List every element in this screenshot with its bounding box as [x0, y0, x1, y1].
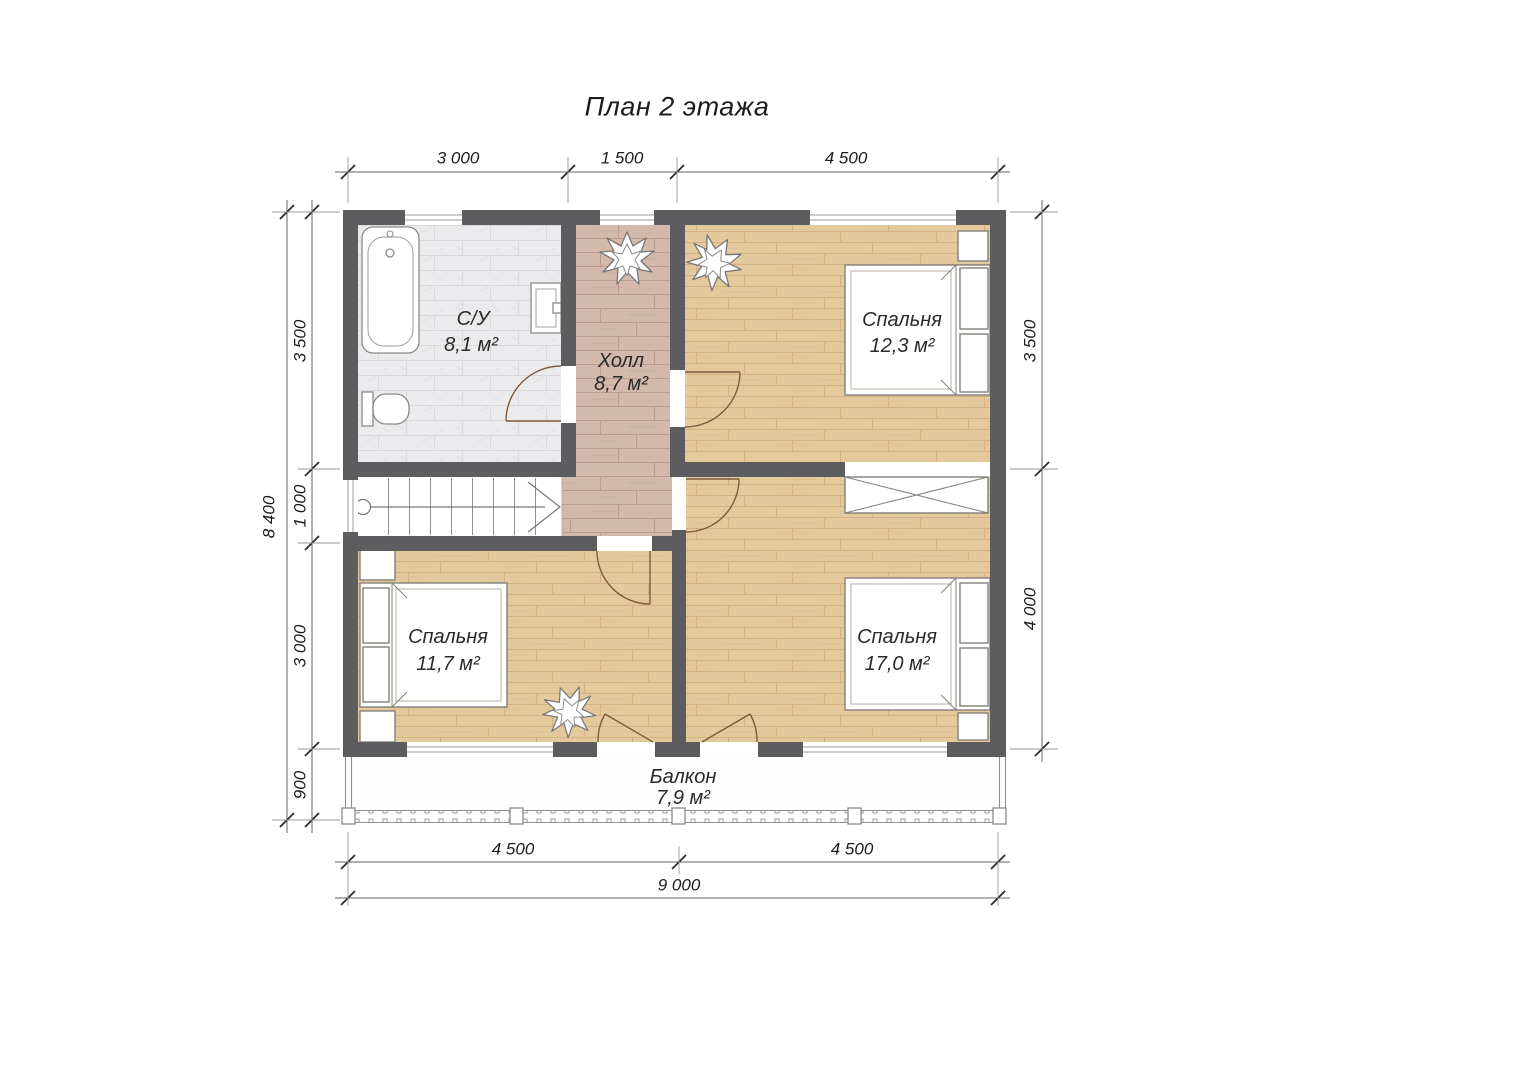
toilet-tank — [362, 392, 373, 426]
window — [343, 480, 358, 532]
room-label-bathroom-area: 8,1 м² — [444, 335, 498, 355]
floor-plan-drawing — [0, 0, 1532, 1080]
dim-bottom-overall: 9 000 — [658, 877, 701, 894]
bathtub — [362, 227, 419, 353]
bathtub-drain — [386, 249, 394, 257]
dim-left-4: 900 — [292, 771, 309, 799]
dim-right-2: 4 000 — [1022, 588, 1039, 631]
dim-left-overall: 8 400 — [261, 496, 278, 539]
dim-bottom-1: 4 500 — [492, 841, 535, 858]
railing-post — [672, 808, 685, 824]
railing-post — [510, 808, 523, 824]
pillow — [960, 334, 988, 392]
pillow — [363, 647, 389, 702]
pillow — [960, 268, 988, 329]
dim-left-1: 3 500 — [292, 320, 309, 363]
toilet-bowl — [373, 394, 409, 424]
wall-bathroom-right — [561, 210, 576, 477]
window — [600, 210, 654, 225]
wall-bathroom-bottom — [343, 462, 576, 477]
room-label-bedroom-bottom-right-area: 17,0 м² — [865, 654, 930, 674]
room-label-hall-name: Холл — [598, 351, 644, 371]
hall-landing-floor — [562, 477, 676, 536]
dim-left-2: 1 000 — [292, 485, 309, 528]
page-title: План 2 этажа — [585, 94, 770, 121]
pillow — [960, 583, 988, 643]
wall-exterior-right — [990, 210, 1006, 757]
nightstand — [958, 713, 988, 740]
nightstand — [958, 231, 988, 261]
railing-post — [848, 808, 861, 824]
floor-plan-page: План 2 этажа 3 000 1 500 4 500 8 400 3 5… — [0, 0, 1532, 1080]
railing-post — [342, 808, 355, 824]
railing-post — [993, 808, 1006, 824]
window — [803, 742, 947, 757]
sink-faucet — [553, 303, 561, 313]
nightstand — [360, 711, 395, 742]
window — [405, 210, 462, 225]
dim-left-3: 3 000 — [292, 625, 309, 668]
nightstand — [360, 549, 395, 580]
pillow — [363, 588, 389, 643]
dim-top-1: 3 000 — [437, 150, 480, 167]
dim-top-3: 4 500 — [825, 150, 868, 167]
room-label-balcony-name: Балкон — [650, 767, 717, 787]
pillow — [960, 648, 988, 706]
room-label-bedroom-top-right-area: 12,3 м² — [870, 336, 935, 356]
dim-right-1: 3 500 — [1022, 320, 1039, 363]
window — [407, 742, 553, 757]
room-label-bedroom-top-right-name: Спальня — [862, 310, 942, 330]
wall-between-right-bedrooms — [670, 462, 845, 477]
wardrobe — [845, 477, 988, 513]
room-label-bedroom-bottom-right-name: Спальня — [857, 627, 937, 647]
staircase — [356, 477, 563, 536]
dim-top-2: 1 500 — [601, 150, 644, 167]
room-label-bathroom-name: С/У — [457, 309, 490, 329]
room-label-bedroom-bottom-left-area: 11,7 м² — [416, 654, 479, 674]
wall-between-bottom-bedrooms — [672, 530, 686, 757]
window — [810, 210, 956, 225]
room-label-balcony-area: 7,9 м² — [656, 788, 710, 808]
dim-bottom-2: 4 500 — [831, 841, 874, 858]
room-label-hall-area: 8,7 м² — [594, 374, 648, 394]
room-label-bedroom-bottom-left-name: Спальня — [408, 627, 488, 647]
